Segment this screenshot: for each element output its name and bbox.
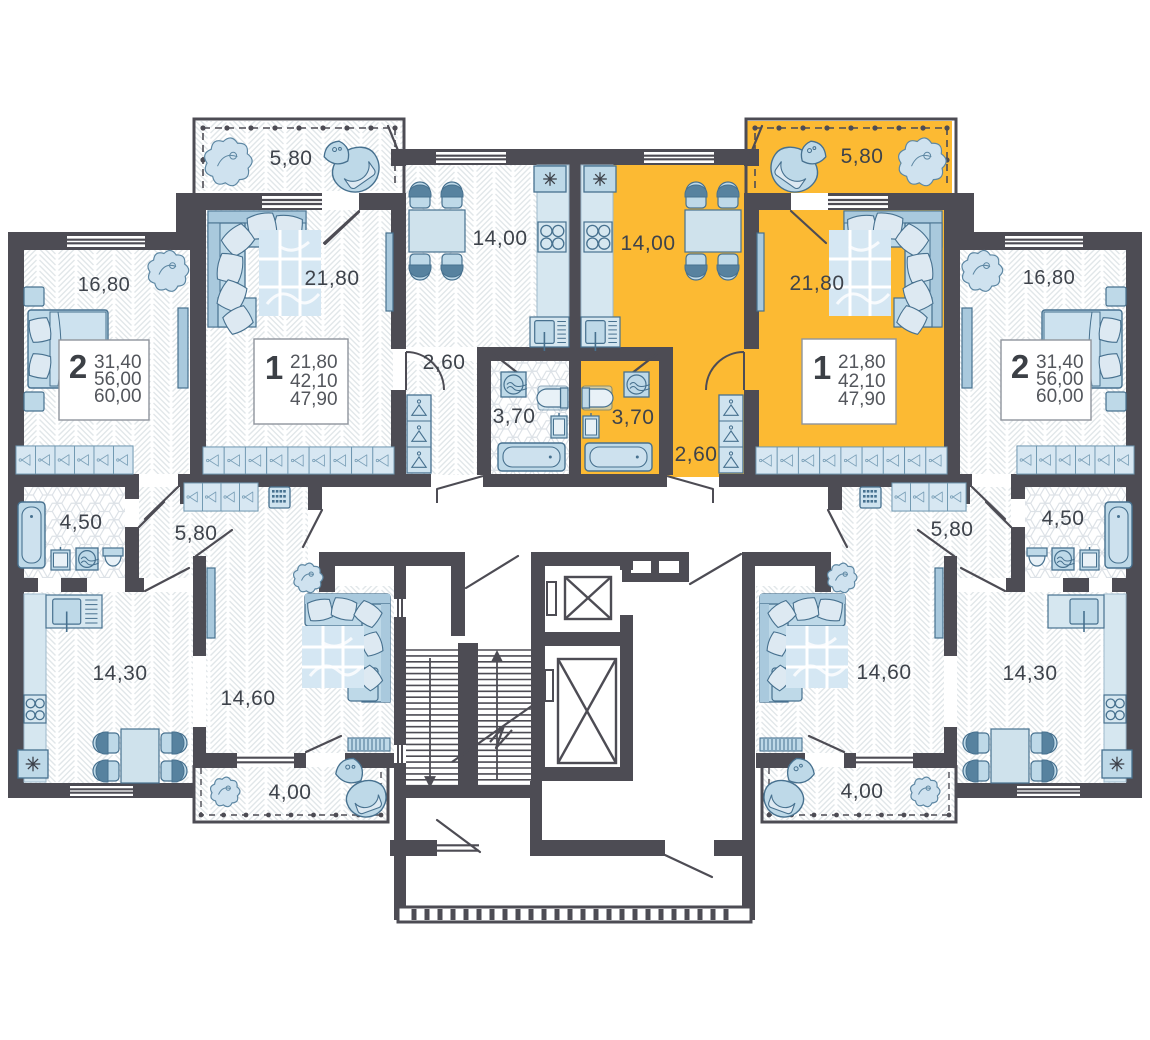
svg-text:3,70: 3,70 (612, 406, 655, 429)
svg-text:14,60: 14,60 (856, 661, 911, 684)
svg-text:5,80: 5,80 (841, 145, 884, 168)
svg-text:14,00: 14,00 (620, 232, 675, 255)
svg-text:60,00: 60,00 (1036, 386, 1084, 407)
svg-text:4,00: 4,00 (269, 781, 312, 804)
svg-text:5,80: 5,80 (931, 518, 974, 541)
svg-text:47,90: 47,90 (290, 389, 338, 410)
svg-text:14,00: 14,00 (472, 227, 527, 250)
svg-text:4,00: 4,00 (841, 780, 884, 803)
svg-text:16,80: 16,80 (78, 274, 131, 296)
svg-text:5,80: 5,80 (175, 522, 218, 545)
svg-text:2: 2 (1011, 348, 1029, 385)
svg-text:3,70: 3,70 (493, 405, 536, 428)
svg-text:2,60: 2,60 (675, 443, 718, 466)
svg-text:21,80: 21,80 (290, 352, 338, 373)
svg-text:4,50: 4,50 (1042, 507, 1085, 530)
svg-text:2,60: 2,60 (423, 351, 466, 374)
svg-text:5,80: 5,80 (270, 147, 313, 170)
svg-text:21,80: 21,80 (838, 352, 886, 373)
svg-text:1: 1 (265, 349, 283, 386)
svg-text:2: 2 (69, 348, 87, 385)
svg-text:21,80: 21,80 (789, 272, 844, 295)
svg-text:16,80: 16,80 (1023, 267, 1076, 289)
svg-text:21,80: 21,80 (304, 267, 359, 290)
svg-text:4,50: 4,50 (60, 511, 103, 534)
svg-text:14,30: 14,30 (92, 662, 147, 685)
svg-text:47,90: 47,90 (838, 389, 886, 410)
svg-text:1: 1 (813, 349, 831, 386)
svg-text:60,00: 60,00 (94, 386, 142, 407)
svg-text:14,60: 14,60 (220, 687, 275, 710)
svg-text:14,30: 14,30 (1002, 662, 1057, 685)
